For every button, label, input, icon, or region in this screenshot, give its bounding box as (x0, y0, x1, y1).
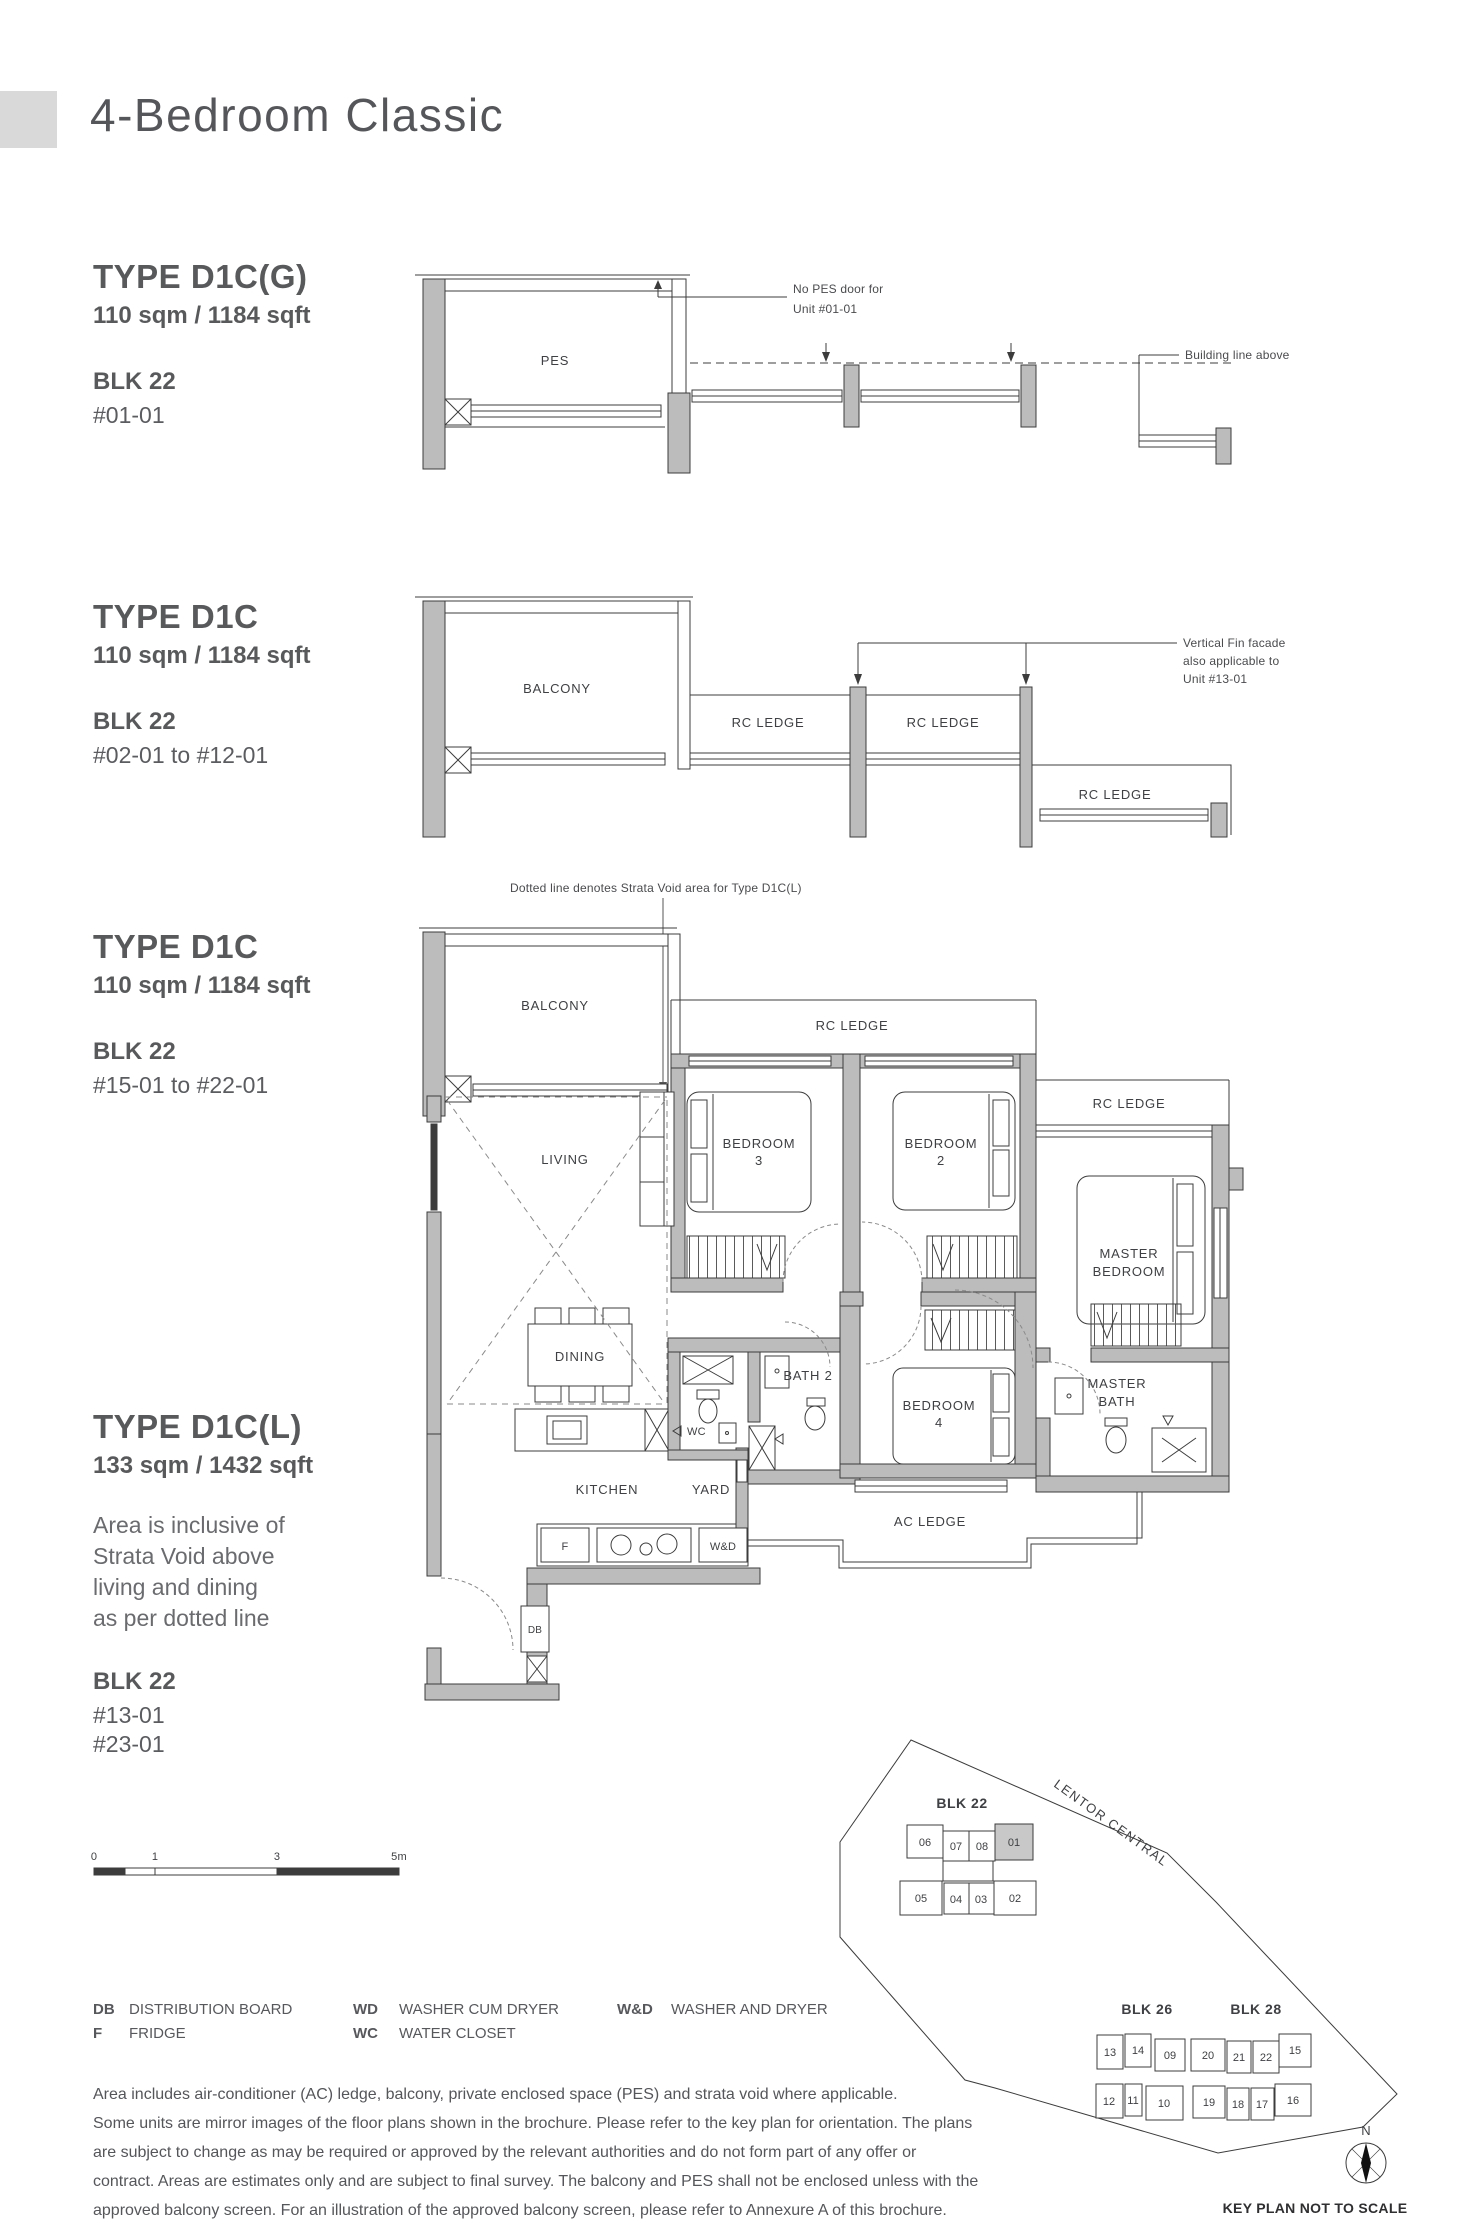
section-type-d1cg: TYPE D1C(G) 110 sqm / 1184 sqft BLK 22 #… (93, 258, 423, 429)
scale-tick-5m: 5m (391, 1851, 407, 1863)
type-name: TYPE D1C(L) (93, 1408, 423, 1446)
bedroom2-label: BEDROOM (905, 1136, 978, 1151)
type-area: 110 sqm / 1184 sqft (93, 972, 423, 1000)
key-plan: LENTOR CENTRAL BLK 22 06 07 08 01 05 04 … (815, 1722, 1420, 2222)
master-bedroom-label-2: BEDROOM (1093, 1264, 1166, 1279)
blk22-unit-05: 05 (915, 1893, 927, 1905)
block-label: BLK 22 (93, 1038, 423, 1066)
bedroom3-label: BEDROOM (723, 1136, 796, 1151)
blk26-unit-12: 12 (1103, 2096, 1115, 2108)
plan1-walls (415, 275, 690, 473)
page-title: 4-Bedroom Classic (90, 88, 504, 142)
floorplan-d1cg: No PES door for Unit #01-01 Building lin… (415, 185, 1295, 500)
blk28-unit-18: 18 (1232, 2099, 1244, 2111)
block-label: BLK 22 (93, 1668, 423, 1696)
legend-column-1: DB DISTRIBUTION BOARD F FRIDGE (93, 1998, 292, 2046)
blk26-unit-13: 13 (1104, 2047, 1116, 2059)
blk28-unit-19: 19 (1203, 2097, 1215, 2109)
rc-ledge-label-a: RC LEDGE (732, 715, 805, 730)
pes-room-label: PES (541, 353, 569, 368)
type-area: 110 sqm / 1184 sqft (93, 642, 423, 670)
bedroom4-label: BEDROOM (903, 1398, 976, 1413)
blk22-unit-08: 08 (976, 1841, 988, 1853)
legend-item-wc: WC WATER CLOSET (353, 2022, 559, 2046)
blk28-unit-17: 17 (1256, 2099, 1268, 2111)
unit-range: #01-01 (93, 402, 423, 429)
blk26-unit-09: 09 (1164, 2050, 1176, 2062)
vertical-fin-note-3: Unit #13-01 (1183, 672, 1247, 686)
plan1-building-line (690, 343, 1233, 464)
scale-bar: 0 1 3 5m (90, 1848, 420, 1890)
keyplan-caption: KEY PLAN NOT TO SCALE (1223, 2200, 1408, 2216)
blk28-unit-20: 20 (1202, 2050, 1214, 2062)
building-line-note: Building line above (1185, 348, 1290, 362)
type-name: TYPE D1C (93, 598, 423, 636)
type-area: 133 sqm / 1432 sqft (93, 1452, 423, 1480)
block-label: BLK 22 (93, 708, 423, 736)
blk28-unit-16: 16 (1287, 2095, 1299, 2107)
brochure-page: 4-Bedroom Classic TYPE D1C(G) 110 sqm / … (0, 0, 1465, 2240)
blk22-unit-06: 06 (919, 1837, 931, 1849)
legend-column-3: W&D WASHER AND DRYER (617, 1998, 828, 2022)
plan2-annotations: Vertical Fin facade also applicable to U… (854, 636, 1286, 686)
kitchen-label: KITCHEN (576, 1482, 639, 1497)
strata-void-note: Area is inclusive of Strata Void above l… (93, 1510, 423, 1634)
dining-label: DINING (555, 1349, 605, 1364)
blk22-unit-01: 01 (1008, 1837, 1020, 1849)
bedroom3-number: 3 (755, 1153, 763, 1168)
living-label: LIVING (541, 1152, 588, 1167)
north-compass-icon: N (1346, 2123, 1386, 2183)
wc-label: WC (687, 1426, 706, 1438)
blk22-unit-07: 07 (950, 1841, 962, 1853)
legend-item-wd: WD WASHER CUM DRYER (353, 1998, 559, 2022)
blk26-unit-14: 14 (1132, 2045, 1144, 2057)
bedroom2-number: 2 (937, 1153, 945, 1168)
bath2-label: BATH 2 (783, 1368, 832, 1383)
corner-accent-square (0, 91, 57, 148)
unit-range: #02-01 to #12-01 (93, 742, 423, 769)
rc-ledge-label-c: RC LEDGE (1079, 787, 1152, 802)
plan1-annotations: No PES door for Unit #01-01 Building lin… (654, 280, 1290, 362)
legend-item-wad: W&D WASHER AND DRYER (617, 1998, 828, 2022)
blk28-unit-21: 21 (1233, 2052, 1245, 2064)
balcony-label: BALCONY (523, 681, 591, 696)
blk22-label: BLK 22 (936, 1795, 987, 1811)
floorplan-main: Dotted line denotes Strata Void area for… (415, 878, 1310, 1723)
blk28-unit-22: 22 (1260, 2052, 1272, 2064)
bedroom4-number: 4 (935, 1415, 943, 1430)
scale-tick-3: 3 (274, 1851, 280, 1863)
unit-range: #15-01 to #22-01 (93, 1072, 423, 1099)
rc-ledge-top-label: RC LEDGE (816, 1018, 889, 1033)
blk22-unit-04: 04 (950, 1894, 962, 1906)
plan2-walls (415, 597, 1231, 847)
north-label: N (1361, 2123, 1371, 2138)
road-label: LENTOR CENTRAL (1051, 1776, 1171, 1869)
legend-column-2: WD WASHER CUM DRYER WC WATER CLOSET (353, 1998, 559, 2046)
rc-ledge-right-label: RC LEDGE (1093, 1096, 1166, 1111)
vertical-fin-note-2: also applicable to (1183, 654, 1279, 668)
legend-item-f: F FRIDGE (93, 2022, 292, 2046)
yard-label: YARD (692, 1482, 730, 1497)
blk26-unit-10: 10 (1158, 2098, 1170, 2110)
plan3-structure (419, 928, 1243, 1700)
floorplan-d1c-partial: Vertical Fin facade also applicable to U… (415, 595, 1295, 860)
master-bedroom-label-1: MASTER (1100, 1246, 1159, 1261)
blk28-unit-15: 15 (1289, 2045, 1301, 2057)
vertical-fin-note-1: Vertical Fin facade (1183, 636, 1286, 650)
legend-item-db: DB DISTRIBUTION BOARD (93, 1998, 292, 2022)
blk28-label: BLK 28 (1230, 2001, 1281, 2017)
washer-dryer-label: W&D (710, 1541, 736, 1553)
section-type-d1cl: TYPE D1C(L) 133 sqm / 1432 sqft Area is … (93, 1408, 423, 1758)
unit-number: #13-01 (93, 1702, 423, 1729)
blk22-unit-03: 03 (975, 1894, 987, 1906)
scale-tick-1: 1 (152, 1851, 158, 1863)
master-bath-label-2: BATH (1099, 1394, 1136, 1409)
master-bath-label-1: MASTER (1088, 1376, 1147, 1391)
scale-tick-0: 0 (91, 1851, 97, 1863)
section-type-d1c-low: TYPE D1C 110 sqm / 1184 sqft BLK 22 #02-… (93, 598, 423, 769)
balcony-label: BALCONY (521, 998, 589, 1013)
blk22-unit-02: 02 (1009, 1893, 1021, 1905)
no-pes-door-note: No PES door for (793, 282, 883, 296)
blk26-unit-11: 11 (1127, 2095, 1138, 2107)
distribution-board-label: DB (528, 1625, 542, 1636)
rc-ledge-label-b: RC LEDGE (907, 715, 980, 730)
strata-void-note-text: Dotted line denotes Strata Void area for… (510, 881, 802, 895)
ac-ledge-label: AC LEDGE (894, 1514, 966, 1529)
type-name: TYPE D1C(G) (93, 258, 423, 296)
type-area: 110 sqm / 1184 sqft (93, 302, 423, 330)
type-name: TYPE D1C (93, 928, 423, 966)
section-type-d1c-high: TYPE D1C 110 sqm / 1184 sqft BLK 22 #15-… (93, 928, 423, 1099)
blk26-label: BLK 26 (1121, 2001, 1172, 2017)
fridge-label: F (562, 1541, 569, 1553)
unit-number: #23-01 (93, 1731, 423, 1758)
no-pes-door-note-2: Unit #01-01 (793, 302, 857, 316)
block-label: BLK 22 (93, 368, 423, 396)
